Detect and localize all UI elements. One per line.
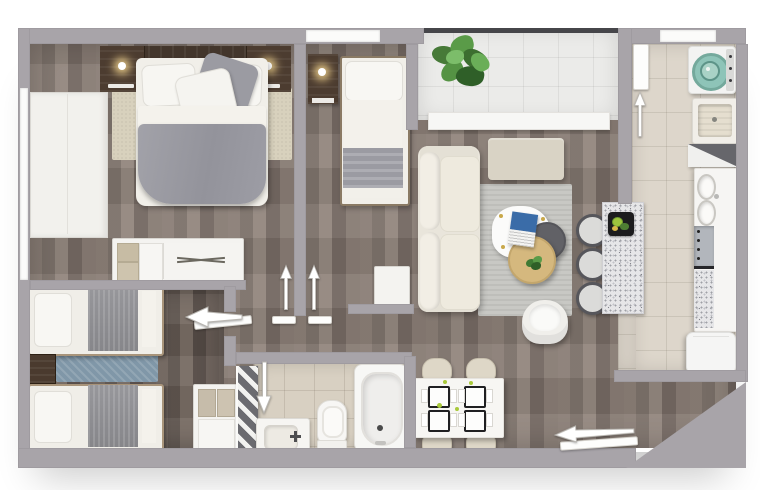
plate bbox=[464, 410, 486, 432]
wall-twin-east-lower bbox=[224, 336, 236, 366]
napkin bbox=[486, 413, 493, 427]
wall-bathroom-right bbox=[404, 356, 416, 448]
pillow-twin bbox=[34, 391, 72, 443]
wall-laundry-left bbox=[618, 28, 632, 204]
napkin bbox=[486, 389, 493, 403]
napkin bbox=[458, 413, 465, 427]
balcony-railing bbox=[424, 28, 618, 33]
gold-dot bbox=[499, 214, 503, 218]
toilet bbox=[314, 400, 348, 452]
wall-lamp-left bbox=[118, 62, 126, 70]
nightstand-single bbox=[308, 54, 338, 104]
cooktop-edge bbox=[694, 266, 714, 269]
wall-hall-stub bbox=[348, 304, 414, 314]
serving-tray bbox=[608, 212, 634, 236]
dresser-cubby-white bbox=[139, 243, 163, 281]
armchair bbox=[522, 300, 568, 344]
dresser bbox=[112, 238, 244, 284]
double-bed bbox=[136, 58, 268, 206]
window-bedroom-single bbox=[306, 30, 380, 42]
bathtub-tap bbox=[375, 441, 386, 445]
sofa-seat-cushion bbox=[440, 156, 480, 232]
door-arrow-laundry bbox=[632, 90, 648, 138]
sofa-back-cushion bbox=[420, 152, 440, 230]
mattress-foot bbox=[142, 389, 156, 443]
laundry-sink bbox=[692, 98, 738, 144]
wall-right bbox=[736, 44, 748, 382]
sofa-seat-cushion bbox=[440, 234, 480, 310]
floor-plan-render: { "plan": {"kind": "apartment-floor-plan… bbox=[0, 0, 760, 490]
cooktop bbox=[694, 226, 714, 266]
throw-blanket bbox=[88, 385, 138, 447]
corner-shelf-triangle bbox=[688, 144, 738, 167]
sofa-back-cushion bbox=[420, 232, 440, 310]
window-left-wall bbox=[20, 88, 28, 280]
washer-knob bbox=[729, 55, 732, 58]
nightstand-left-tray bbox=[108, 84, 134, 88]
cooktop-knob bbox=[697, 239, 700, 242]
cubby-shelf-unit bbox=[193, 384, 239, 454]
lime-accent bbox=[469, 381, 473, 385]
bathtub bbox=[354, 364, 408, 452]
pillow-single bbox=[345, 61, 403, 101]
laundry-drain bbox=[712, 117, 717, 122]
gold-dot bbox=[501, 245, 505, 249]
food-greens bbox=[620, 223, 629, 230]
gray-duvet bbox=[138, 124, 266, 204]
hall-cabinet bbox=[374, 266, 410, 308]
cooktop-knob bbox=[697, 248, 700, 251]
napkin bbox=[458, 389, 465, 403]
napkin bbox=[450, 413, 457, 427]
washer-knob bbox=[729, 79, 732, 82]
door-arrow-bedroom-single bbox=[307, 256, 321, 318]
door-arrow-bathroom bbox=[254, 360, 274, 416]
granite-counter bbox=[694, 270, 714, 328]
vanity-faucet-bar bbox=[290, 435, 301, 438]
wall-bottom bbox=[18, 448, 636, 468]
plate bbox=[428, 410, 450, 432]
lime-accent bbox=[455, 407, 459, 411]
wall-bedrooms-divider bbox=[294, 44, 306, 316]
lime-accent bbox=[437, 403, 442, 408]
washing-machine bbox=[688, 46, 736, 94]
napkin bbox=[421, 413, 428, 427]
cooktop-knob bbox=[697, 257, 700, 260]
refrigerator bbox=[686, 332, 736, 374]
lime-accent bbox=[443, 380, 447, 384]
sheet-single bbox=[344, 100, 402, 148]
shelf-panel-beige bbox=[217, 389, 235, 417]
door-arrow-bedroom-twin bbox=[182, 306, 244, 328]
mattress-foot bbox=[142, 291, 156, 347]
food-garnish bbox=[612, 226, 618, 231]
small-plant bbox=[526, 256, 544, 271]
balcony-plant bbox=[432, 36, 494, 98]
closet-main-bedroom bbox=[30, 92, 108, 238]
plate bbox=[464, 386, 486, 408]
closet-divider bbox=[67, 94, 68, 234]
sink-faucet bbox=[714, 194, 719, 199]
mattress-foot bbox=[344, 188, 402, 198]
cooktop-knob bbox=[697, 230, 700, 233]
washer-lid-ring bbox=[700, 61, 720, 81]
leaf bbox=[446, 50, 464, 64]
wall-kitchen-south bbox=[614, 370, 746, 382]
twin-bed-upper bbox=[28, 286, 164, 356]
washer-knob bbox=[729, 67, 732, 70]
twin-bed-lower bbox=[28, 384, 164, 452]
bathtub-drain bbox=[377, 425, 383, 431]
striped-blanket bbox=[343, 148, 403, 188]
pillow-twin bbox=[34, 293, 72, 347]
opening-laundry-top bbox=[660, 30, 716, 42]
leaf bbox=[531, 262, 541, 270]
corner-shelf bbox=[688, 144, 738, 167]
dresser-cubby-beige bbox=[117, 243, 139, 262]
gold-dot bbox=[541, 217, 545, 221]
shelf-panel-white bbox=[198, 419, 235, 449]
napkin bbox=[421, 389, 428, 403]
wall-lamp-single bbox=[318, 68, 326, 76]
ottoman bbox=[488, 138, 564, 180]
door-leaf-laundry bbox=[633, 44, 649, 90]
single-bed bbox=[340, 56, 410, 206]
shelf-panel-beige bbox=[198, 389, 216, 417]
toilet-seat bbox=[322, 406, 344, 438]
fridge-seam bbox=[693, 336, 729, 337]
magazine bbox=[508, 211, 538, 247]
wall-under-dresser bbox=[30, 280, 246, 290]
sink-basin bbox=[697, 200, 716, 226]
wall-bedroom2-living bbox=[406, 44, 418, 130]
armchair-seat bbox=[529, 304, 561, 331]
throw-blanket bbox=[88, 287, 138, 351]
balcony-threshold bbox=[428, 112, 610, 130]
door-arrow-bedroom-main bbox=[279, 256, 293, 318]
nightstand-single-tray bbox=[312, 98, 334, 103]
dresser-cubby-beige bbox=[117, 262, 139, 281]
rug-twin-runner bbox=[56, 354, 158, 382]
bathtub-inner bbox=[361, 372, 403, 446]
washer-lid-dot bbox=[706, 67, 710, 71]
napkin bbox=[450, 389, 457, 403]
